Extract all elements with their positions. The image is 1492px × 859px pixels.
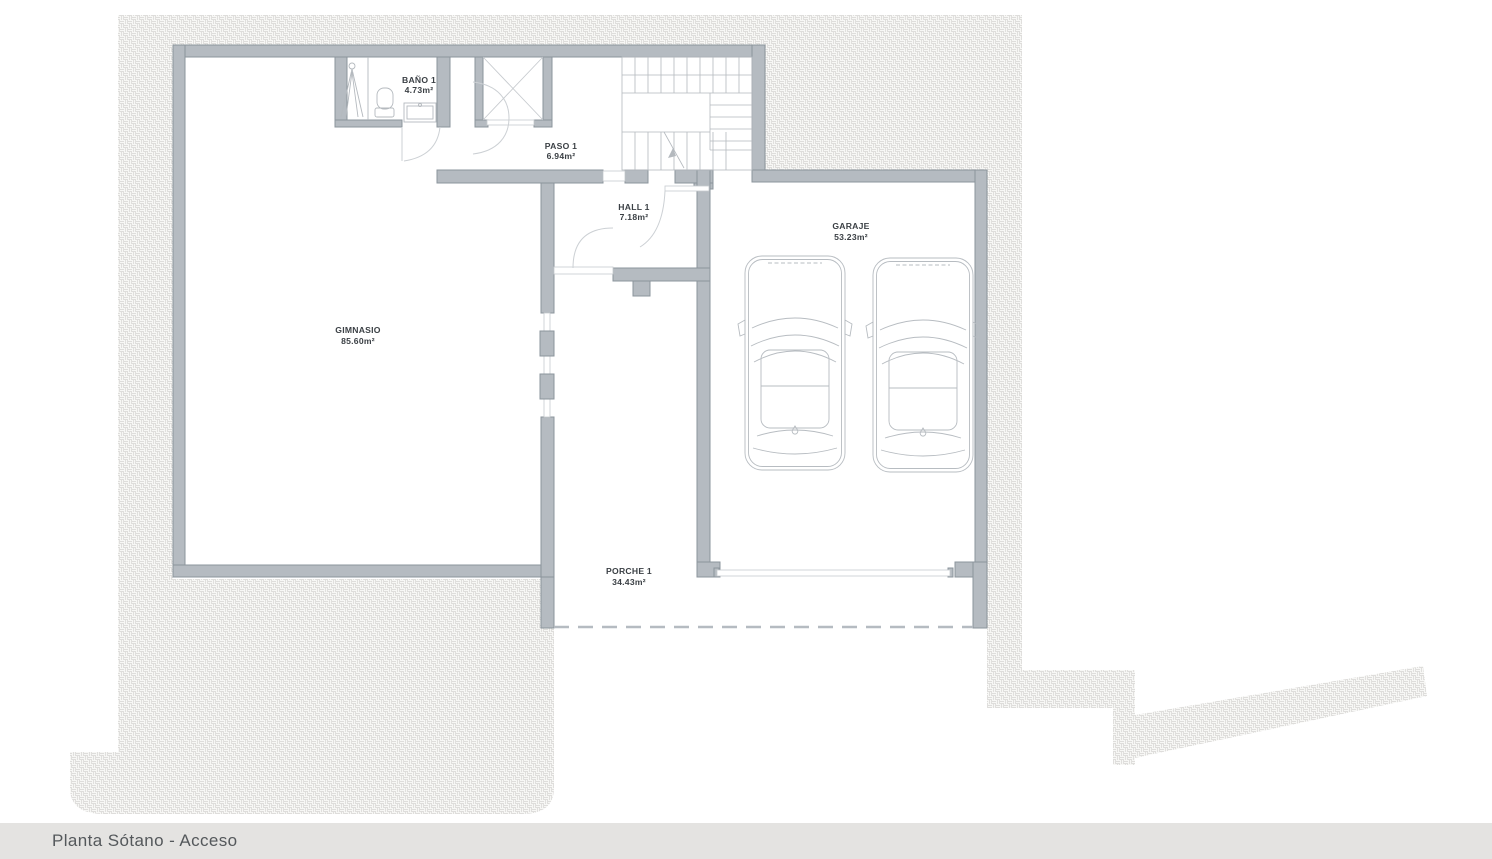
gym-window (544, 313, 550, 417)
room-label-garaje: GARAJE 53.23m² (832, 221, 869, 242)
wall-top (173, 45, 765, 57)
wall-hall-bottom (613, 268, 710, 281)
wall-garage-right (975, 170, 987, 575)
wall-garage-left (697, 170, 710, 577)
room-label-porche: PORCHE 1 34.43m² (606, 566, 652, 587)
wall-elevator-right (543, 57, 552, 127)
wall-bath-left (335, 57, 347, 120)
room-area: 6.94m² (547, 151, 576, 161)
wall-paso-bottom (437, 170, 603, 183)
floor-plan-drawing: BAÑO 1 4.73m² PASO 1 6.94m² HALL 1 7.18m… (0, 0, 1492, 823)
room-area: 34.43m² (612, 577, 646, 587)
terrain-right-band (987, 170, 1022, 708)
wall-garage-top (752, 170, 987, 182)
terrain-left-band (118, 45, 173, 579)
terrain-step-block (1018, 670, 1135, 708)
room-label-paso: PASO 1 6.94m² (545, 141, 577, 161)
elevator-door (487, 120, 534, 125)
room-area: 53.23m² (834, 232, 868, 242)
plan-title: Planta Sótano - Acceso (52, 831, 238, 851)
plan-title-bar: Planta Sótano - Acceso (0, 823, 1492, 859)
room-label-gimnasio: GIMNASIO 85.60m² (335, 325, 381, 346)
wall-bath-bottom (335, 120, 402, 127)
wall-gym-bottom (173, 565, 554, 577)
wall-gym-right-upper (541, 170, 554, 313)
garage-door (717, 570, 950, 576)
terrain-diagonal-band (1135, 666, 1427, 758)
room-area: 85.60m² (341, 336, 375, 346)
terrain-step-drop (1113, 708, 1135, 765)
room-name: BAÑO 1 (402, 75, 436, 85)
room-name: PORCHE 1 (606, 566, 652, 576)
paso-window (603, 171, 625, 181)
wall-elevator-left (475, 57, 483, 127)
room-name: PASO 1 (545, 141, 577, 151)
room-name: GIMNASIO (335, 325, 381, 335)
wall-left (173, 45, 185, 577)
hall-door-leaf (665, 186, 709, 191)
wall-hall-pillar (633, 281, 650, 296)
terrain-top-band (118, 15, 1022, 45)
wall-porch-right (973, 562, 987, 628)
room-label-bano: BAÑO 1 4.73m² (402, 75, 436, 95)
wall-elevator-sill-left (475, 120, 488, 127)
wall-stair-right (752, 45, 765, 170)
terrain-top-right-block (765, 45, 1022, 170)
hall-glazing (554, 267, 613, 274)
room-name: HALL 1 (618, 202, 649, 212)
wall-elevator-sill-right (534, 120, 552, 127)
wall-paso-jamb (625, 170, 648, 183)
room-label-hall: HALL 1 7.18m² (618, 202, 649, 222)
room-area: 7.18m² (620, 212, 649, 222)
floor-plan-page: BAÑO 1 4.73m² PASO 1 6.94m² HALL 1 7.18m… (0, 0, 1492, 859)
wall-gym-right-lower (541, 417, 554, 577)
wall-bath-divider (437, 57, 450, 127)
room-name: GARAJE (832, 221, 869, 231)
room-area: 4.73m² (405, 85, 434, 95)
terrain-bottom-block (70, 579, 554, 814)
